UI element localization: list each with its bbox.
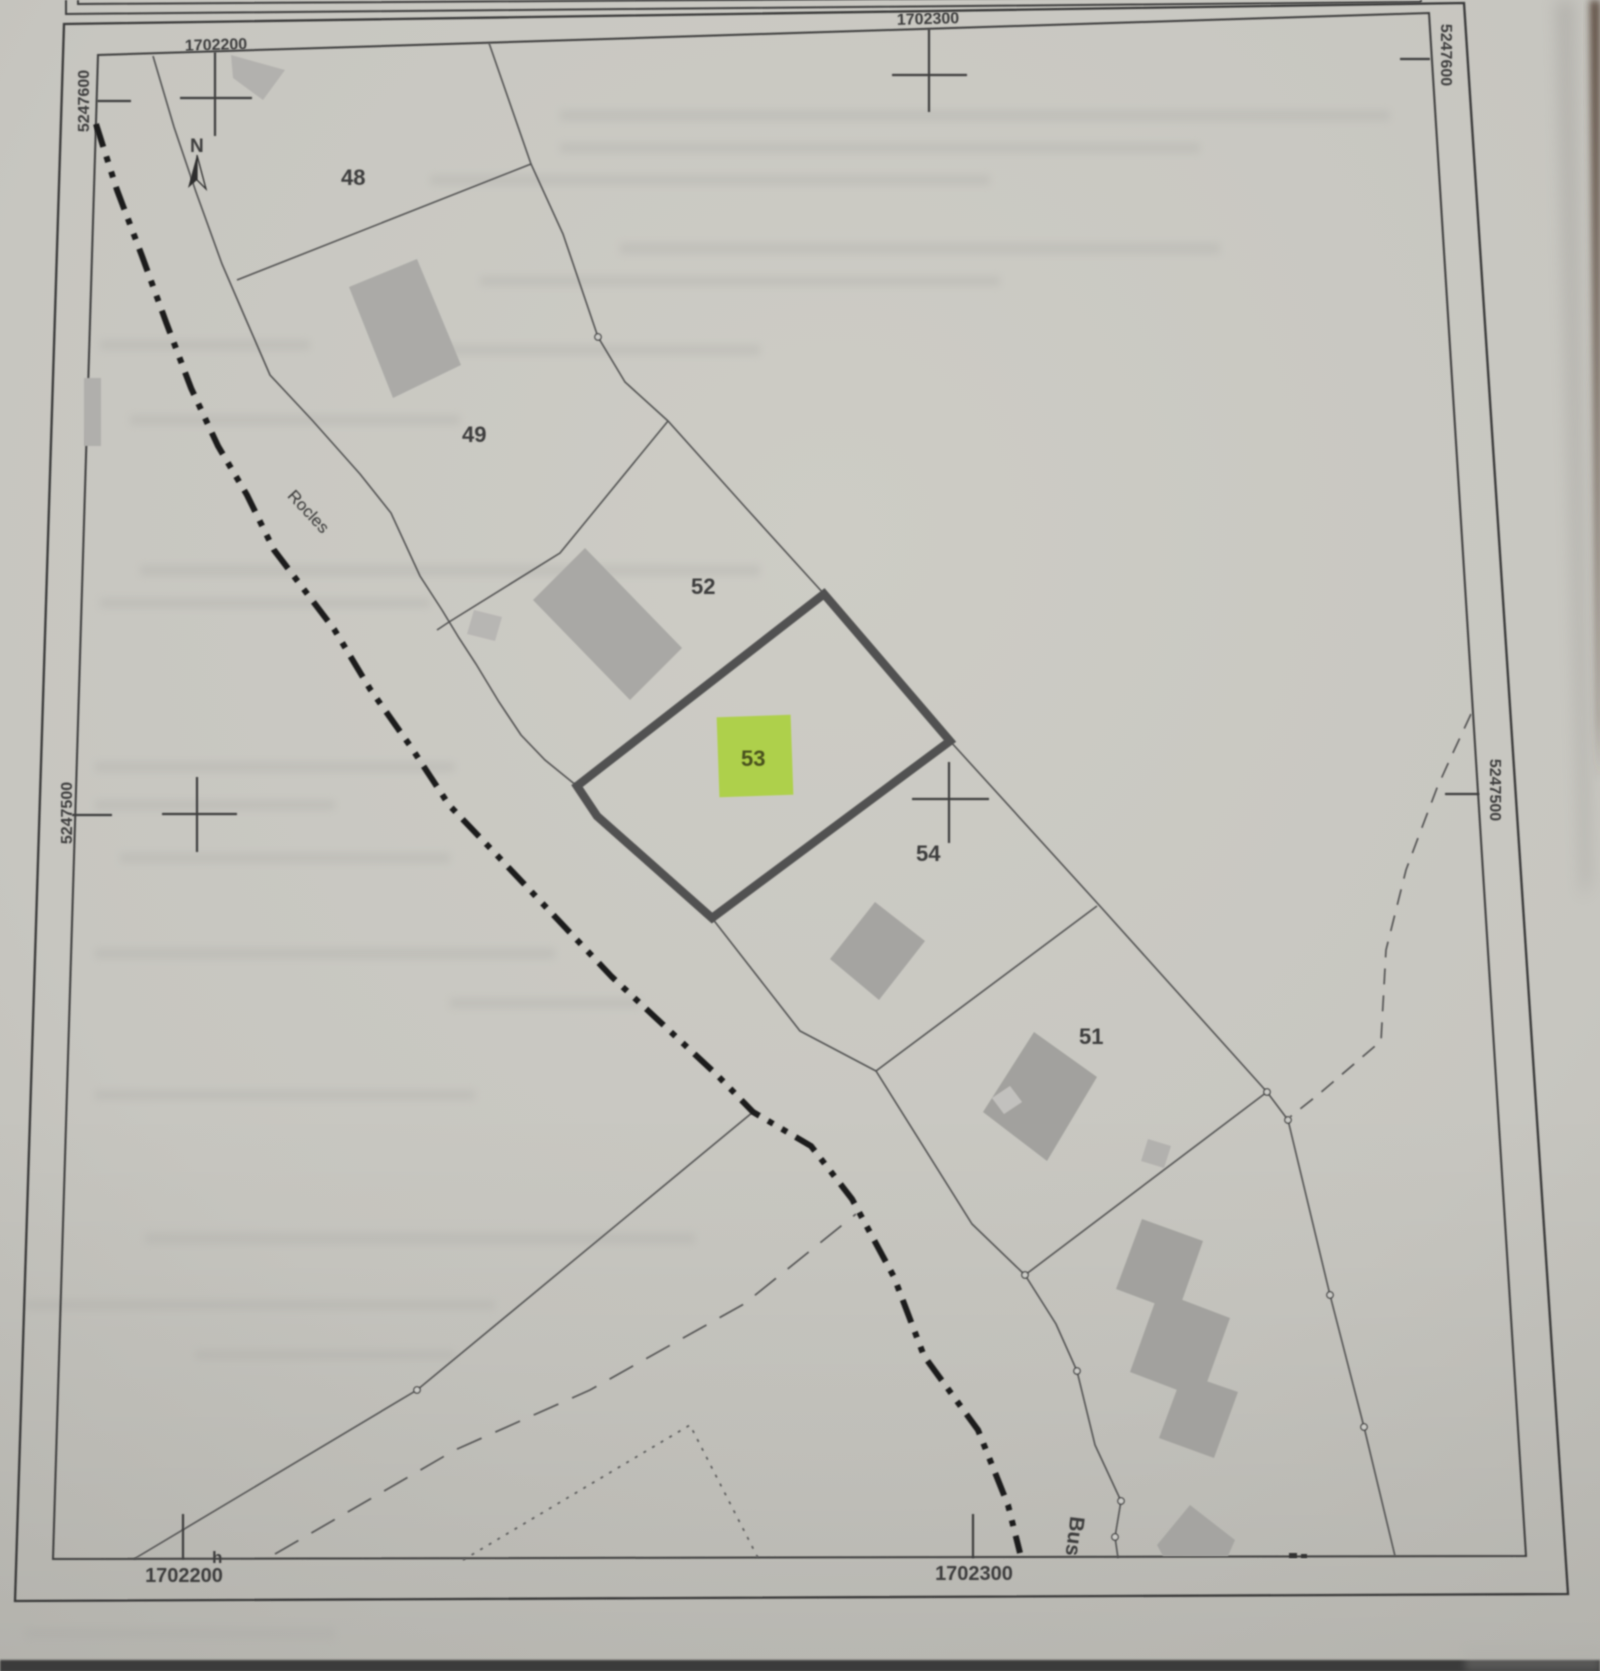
svg-text:53: 53	[741, 746, 765, 771]
svg-text:51: 51	[1079, 1024, 1103, 1049]
svg-text:1702300: 1702300	[935, 1563, 1013, 1585]
svg-text:5247500: 5247500	[59, 782, 76, 844]
svg-text:1702200: 1702200	[145, 1565, 223, 1587]
svg-text:1702300: 1702300	[897, 10, 960, 29]
svg-text:5247600: 5247600	[76, 70, 93, 132]
svg-text:5247600: 5247600	[1437, 24, 1454, 86]
svg-text:48: 48	[341, 165, 365, 190]
svg-text:54: 54	[916, 841, 941, 866]
svg-text:5247500: 5247500	[1486, 759, 1503, 821]
svg-text:1702200: 1702200	[185, 36, 248, 55]
svg-text:Bus: Bus	[1061, 1515, 1089, 1557]
svg-text:49: 49	[462, 422, 486, 447]
svg-text:52: 52	[691, 574, 715, 599]
svg-text:h: h	[212, 1548, 222, 1567]
svg-text:N: N	[190, 136, 204, 157]
